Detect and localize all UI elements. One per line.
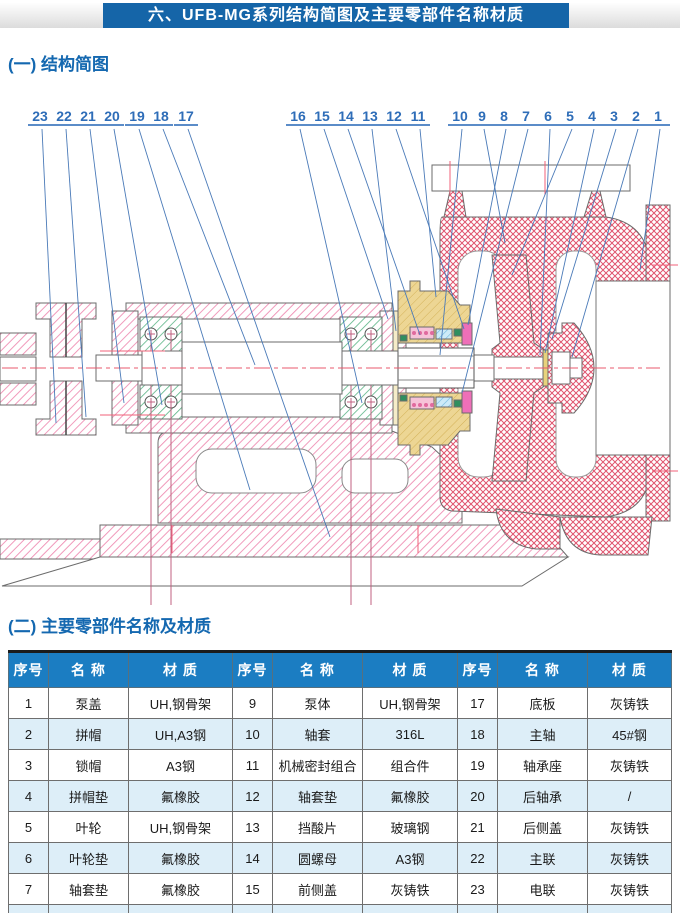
callout-number-23: 23 <box>28 108 52 126</box>
part-no-cell: 12 <box>233 781 273 812</box>
column-header-no: 序号 <box>458 652 498 688</box>
sleeve-gasket-lower <box>462 391 472 413</box>
part-no-cell: 3 <box>9 750 49 781</box>
part-no-cell: 16 <box>233 905 273 913</box>
table-row: 2拼帽UH,A3钢10轴套316L18主轴45#钢 <box>9 719 672 750</box>
part-no-cell: 6 <box>9 843 49 874</box>
part-material-cell: 组合件 <box>363 750 458 781</box>
part-no-cell: 2 <box>9 719 49 750</box>
column-header-no: 序号 <box>233 652 273 688</box>
callout-number-19: 19 <box>125 108 149 126</box>
spring-coil <box>424 331 428 335</box>
part-name-cell: 轴套垫 <box>49 874 129 905</box>
callout-number-6: 6 <box>536 108 560 126</box>
part-material-cell: 45#钢 <box>588 719 672 750</box>
column-header-name: 名 称 <box>273 652 363 688</box>
part-material-cell: 灰铸铁 <box>588 750 672 781</box>
rear-side-cover-upper <box>112 311 138 355</box>
callout-number-4: 4 <box>580 108 604 126</box>
part-name-cell: 挡酸片 <box>273 812 363 843</box>
callout-number-14: 14 <box>334 108 358 126</box>
table-body: 1泵盖UH,钢骨架9泵体UH,钢骨架17底板灰铸铁2拼帽UH,A3钢10轴套31… <box>9 688 672 913</box>
part-material-cell: 灰铸铁 <box>588 688 672 719</box>
parts-table-wrap: 序号名 称材 质序号名 称材 质序号名 称材 质 1泵盖UH,钢骨架9泵体UH,… <box>8 650 672 913</box>
acid-deflector-lower <box>393 385 398 425</box>
part-material-cell: 玻璃钢 <box>363 812 458 843</box>
seal-oring <box>400 395 407 401</box>
column-header-name: 名 称 <box>498 652 588 688</box>
part-name-cell: 泵盖 <box>49 688 129 719</box>
part-material-cell: 316L <box>363 719 458 750</box>
part-name-cell: 后侧盖 <box>498 812 588 843</box>
part-material-cell: 灰铸铁 <box>588 874 672 905</box>
part-material-cell: 氟橡胶 <box>129 843 233 874</box>
spring-coil <box>412 403 416 407</box>
callout-number-7: 7 <box>514 108 538 126</box>
part-material-cell: A3钢 <box>363 843 458 874</box>
part-no-cell <box>458 905 498 913</box>
seal-spring-lower <box>410 397 434 409</box>
part-no-cell: 8 <box>9 905 49 913</box>
column-header-name: 名 称 <box>49 652 129 688</box>
baseplate-front-face <box>2 557 568 586</box>
part-name-cell: 叶轮垫 <box>49 843 129 874</box>
part-name-cell: 主轴 <box>498 719 588 750</box>
leader-line-15 <box>324 129 388 319</box>
callout-number-17: 17 <box>174 108 198 126</box>
table-row: 5叶轮UH,钢骨架13挡酸片玻璃钢21后侧盖灰铸铁 <box>9 812 672 843</box>
seal-oring <box>400 335 407 341</box>
column-header-material: 材 质 <box>588 652 672 688</box>
callout-number-21: 21 <box>76 108 100 126</box>
rear-side-cover-lower <box>112 381 138 425</box>
leader-line-23 <box>42 129 56 423</box>
callout-number-15: 15 <box>310 108 334 126</box>
part-no-cell: 23 <box>458 874 498 905</box>
part-no-cell: 18 <box>458 719 498 750</box>
spring-coil <box>430 331 434 335</box>
part-material-cell: / <box>588 781 672 812</box>
pump-cross-section-diagram: 2322212019181716151413121110987654321 <box>0 105 680 610</box>
callout-number-16: 16 <box>286 108 310 126</box>
part-no-cell: 4 <box>9 781 49 812</box>
part-name-cell: 前侧盖 <box>273 874 363 905</box>
callout-number-10: 10 <box>448 108 472 126</box>
part-no-cell: 14 <box>233 843 273 874</box>
column-header-no: 序号 <box>9 652 49 688</box>
part-material-cell: / <box>363 905 458 913</box>
spring-coil <box>430 403 434 407</box>
part-material-cell: UH,钢骨架 <box>129 812 233 843</box>
spring-coil <box>424 403 428 407</box>
part-no-cell: 7 <box>9 874 49 905</box>
column-header-material: 材 质 <box>363 652 458 688</box>
callout-number-2: 2 <box>624 108 648 126</box>
discharge-flange <box>432 165 630 191</box>
spring-coil <box>412 331 416 335</box>
part-name-cell: 轴套 <box>273 719 363 750</box>
part-no-cell: 10 <box>233 719 273 750</box>
motor-shaft <box>0 357 36 381</box>
catalog-page: 六、UFB-MG系列结构简图及主要零部件名称材质 (一) 结构简图 <box>0 0 680 913</box>
part-no-cell: 19 <box>458 750 498 781</box>
part-no-cell: 5 <box>9 812 49 843</box>
part-no-cell: 20 <box>458 781 498 812</box>
table-row: 3锁帽A3钢11机械密封组合组合件19轴承座灰铸铁 <box>9 750 672 781</box>
callout-number-1: 1 <box>646 108 670 126</box>
callout-number-13: 13 <box>358 108 382 126</box>
seal-oring <box>454 329 461 336</box>
seal-ring-upper <box>436 329 452 339</box>
part-no-cell: 21 <box>458 812 498 843</box>
part-material-cell: UH,钢骨架 <box>363 688 458 719</box>
part-no-cell: 13 <box>233 812 273 843</box>
callout-number-5: 5 <box>558 108 582 126</box>
callout-number-20: 20 <box>100 108 124 126</box>
callout-number-8: 8 <box>492 108 516 126</box>
part-no-cell: 1 <box>9 688 49 719</box>
part-material-cell: 灰铸铁 <box>588 843 672 874</box>
leader-line-13 <box>372 129 396 331</box>
table-row: 4拼帽垫氟橡胶12轴套垫氟橡胶20后轴承/ <box>9 781 672 812</box>
callout-number-12: 12 <box>382 108 406 126</box>
part-no-cell: 22 <box>458 843 498 874</box>
part-material-cell: 氟橡胶 <box>363 781 458 812</box>
flange-neck-right <box>584 191 606 217</box>
part-name-cell: 圆螺母 <box>273 843 363 874</box>
part-material-cell: 氟橡胶 <box>129 781 233 812</box>
baseplate <box>100 525 568 557</box>
table-row: 8密封盒垫氟橡胶16前轴承/ <box>9 905 672 913</box>
part-name-cell <box>498 905 588 913</box>
part-name-cell: 轴套垫 <box>273 781 363 812</box>
callout-number-9: 9 <box>470 108 494 126</box>
part-material-cell: UH,A3钢 <box>129 719 233 750</box>
pump-drawing <box>0 105 680 605</box>
callout-number-18: 18 <box>149 108 173 126</box>
leader-line-11 <box>420 129 436 297</box>
part-name-cell: 拼帽垫 <box>49 781 129 812</box>
part-name-cell: 底板 <box>498 688 588 719</box>
suction-flange-upper <box>646 205 670 281</box>
casing-foot <box>560 517 652 555</box>
part-material-cell: UH,钢骨架 <box>129 688 233 719</box>
part-material-cell: 氟橡胶 <box>129 905 233 913</box>
part-material-cell: 灰铸铁 <box>588 812 672 843</box>
part-material-cell <box>588 905 672 913</box>
spring-coil <box>418 403 422 407</box>
part-name-cell: 叶轮 <box>49 812 129 843</box>
bracket-cutout <box>196 449 316 493</box>
part-name-cell: 机械密封组合 <box>273 750 363 781</box>
part-no-cell: 11 <box>233 750 273 781</box>
part-name-cell: 锁帽 <box>49 750 129 781</box>
part-name-cell: 密封盒垫 <box>49 905 129 913</box>
table-row: 1泵盖UH,钢骨架9泵体UH,钢骨架17底板灰铸铁 <box>9 688 672 719</box>
leader-line-22 <box>66 129 86 417</box>
seal-oring <box>454 400 461 407</box>
bracket-cutout-2 <box>342 459 408 493</box>
motor-stub-upper <box>0 333 36 355</box>
part-name-cell: 后轴承 <box>498 781 588 812</box>
part-no-cell: 17 <box>458 688 498 719</box>
table-header-row: 序号名 称材 质序号名 称材 质序号名 称材 质 <box>9 652 672 688</box>
table-row: 6叶轮垫氟橡胶14圆螺母A3钢22主联灰铸铁 <box>9 843 672 874</box>
acid-deflector-upper <box>393 311 398 351</box>
column-header-material: 材 质 <box>129 652 233 688</box>
table-row: 7轴套垫氟橡胶15前侧盖灰铸铁23电联灰铸铁 <box>9 874 672 905</box>
part-name-cell: 前轴承 <box>273 905 363 913</box>
part-material-cell: 氟橡胶 <box>129 874 233 905</box>
section-title-diagram: (一) 结构简图 <box>8 50 109 75</box>
suction-flange-lower <box>646 455 670 521</box>
part-name-cell: 拼帽 <box>49 719 129 750</box>
baseplate-left-step <box>0 539 100 559</box>
callout-number-22: 22 <box>52 108 76 126</box>
parts-table: 序号名 称材 质序号名 称材 质序号名 称材 质 1泵盖UH,钢骨架9泵体UH,… <box>8 650 672 913</box>
page-title: 六、UFB-MG系列结构简图及主要零部件名称材质 <box>103 3 569 28</box>
section-title-parts-table: (二) 主要零部件名称及材质 <box>8 612 211 637</box>
callout-number-11: 11 <box>406 108 430 126</box>
part-material-cell: 灰铸铁 <box>363 874 458 905</box>
part-no-cell: 15 <box>233 874 273 905</box>
callout-number-3: 3 <box>602 108 626 126</box>
part-no-cell: 9 <box>233 688 273 719</box>
part-name-cell: 轴承座 <box>498 750 588 781</box>
part-name-cell: 泵体 <box>273 688 363 719</box>
part-name-cell: 电联 <box>498 874 588 905</box>
part-material-cell: A3钢 <box>129 750 233 781</box>
motor-stub-lower <box>0 383 36 405</box>
seal-ring-lower <box>436 397 452 407</box>
part-name-cell: 主联 <box>498 843 588 874</box>
